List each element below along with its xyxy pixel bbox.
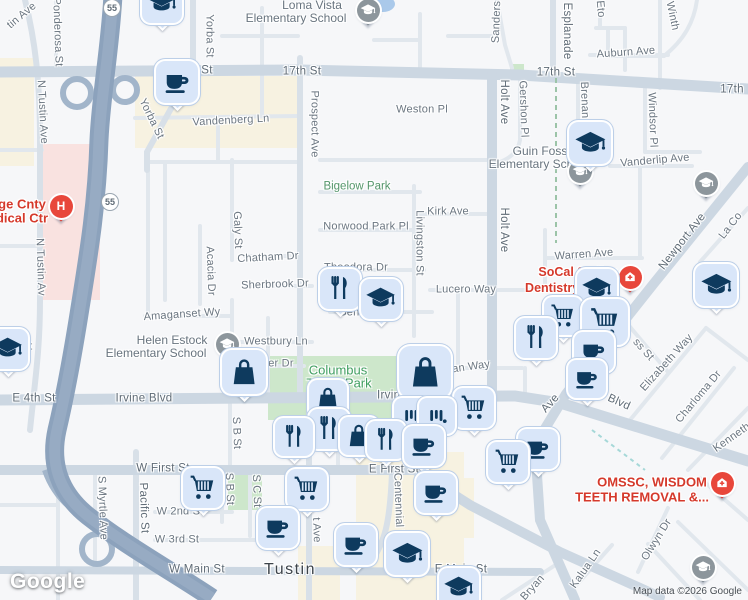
graduation-cap-icon xyxy=(0,333,24,364)
fork-knife-icon xyxy=(371,425,401,455)
pin-body xyxy=(516,318,556,358)
pin-body xyxy=(386,533,428,575)
coffee-pin[interactable] xyxy=(404,426,444,466)
grocery-cart-pin[interactable] xyxy=(488,442,528,482)
restaurant-pin[interactable] xyxy=(367,421,405,459)
pin-body xyxy=(568,360,606,398)
coffee-pin[interactable] xyxy=(258,508,298,548)
pin-body xyxy=(0,329,28,369)
shopping-bag-pin[interactable] xyxy=(399,346,451,398)
fork-knife-icon xyxy=(520,322,551,353)
pin-body xyxy=(367,421,405,459)
shopping-bag-pin[interactable] xyxy=(222,350,266,394)
shopping-cart-icon xyxy=(492,446,523,477)
pin-body xyxy=(361,279,401,319)
pin-body xyxy=(142,0,182,23)
pin-body xyxy=(275,418,313,456)
graduation-cap-icon xyxy=(700,269,733,302)
fork-knife-icon xyxy=(324,273,355,304)
pin-body xyxy=(222,350,266,394)
map[interactable]: Loma VistaElementary School17th StSt17th… xyxy=(0,0,748,600)
shopping-cart-icon xyxy=(291,473,322,504)
shopping-bag-icon xyxy=(227,355,261,389)
pin-layer xyxy=(0,0,748,600)
coffee-cup-icon xyxy=(340,529,371,560)
graduation-cap-icon xyxy=(365,283,396,314)
pin-body xyxy=(416,473,456,513)
school-pin[interactable] xyxy=(361,279,401,319)
coffee-pin[interactable] xyxy=(336,525,376,565)
coffee-pin[interactable] xyxy=(416,473,456,513)
coffee-pin[interactable] xyxy=(156,61,198,103)
pin-body xyxy=(320,269,360,309)
coffee-cup-icon xyxy=(161,66,194,99)
shopping-bag-icon xyxy=(405,352,446,393)
restaurant-pin[interactable] xyxy=(275,418,313,456)
graduation-cap-icon xyxy=(391,538,424,571)
shopping-cart-icon xyxy=(458,392,489,423)
pin-body xyxy=(404,426,444,466)
school-pin[interactable] xyxy=(386,533,428,575)
coffee-cup-icon xyxy=(408,430,439,461)
school-pin[interactable] xyxy=(142,0,182,23)
restaurant-pin[interactable] xyxy=(516,318,556,358)
coffee-cup-icon xyxy=(420,477,451,508)
coffee-pin[interactable] xyxy=(568,360,606,398)
pin-body xyxy=(569,122,611,164)
pin-body xyxy=(695,264,737,306)
fork-knife-icon xyxy=(279,422,309,452)
school-pin[interactable] xyxy=(0,329,28,369)
pin-body xyxy=(258,508,298,548)
school-pin[interactable] xyxy=(695,264,737,306)
pin-body xyxy=(156,61,198,103)
pin-body xyxy=(287,469,327,509)
coffee-cup-icon xyxy=(262,512,293,543)
pin-body xyxy=(183,468,223,508)
pin-body xyxy=(439,568,479,600)
graduation-cap-icon xyxy=(146,0,177,19)
pin-body xyxy=(454,388,494,428)
pin-body xyxy=(336,525,376,565)
school-pin[interactable] xyxy=(439,568,479,600)
coffee-cup-icon xyxy=(572,364,602,394)
graduation-cap-icon xyxy=(443,572,474,600)
grocery-cart-pin[interactable] xyxy=(287,469,327,509)
graduation-cap-icon xyxy=(574,127,607,160)
pin-body xyxy=(399,346,451,398)
grocery-cart-pin[interactable] xyxy=(454,388,494,428)
grocery-cart-pin[interactable] xyxy=(183,468,223,508)
restaurant-pin[interactable] xyxy=(320,269,360,309)
school-pin[interactable] xyxy=(569,122,611,164)
shopping-cart-icon xyxy=(187,472,218,503)
pin-body xyxy=(488,442,528,482)
